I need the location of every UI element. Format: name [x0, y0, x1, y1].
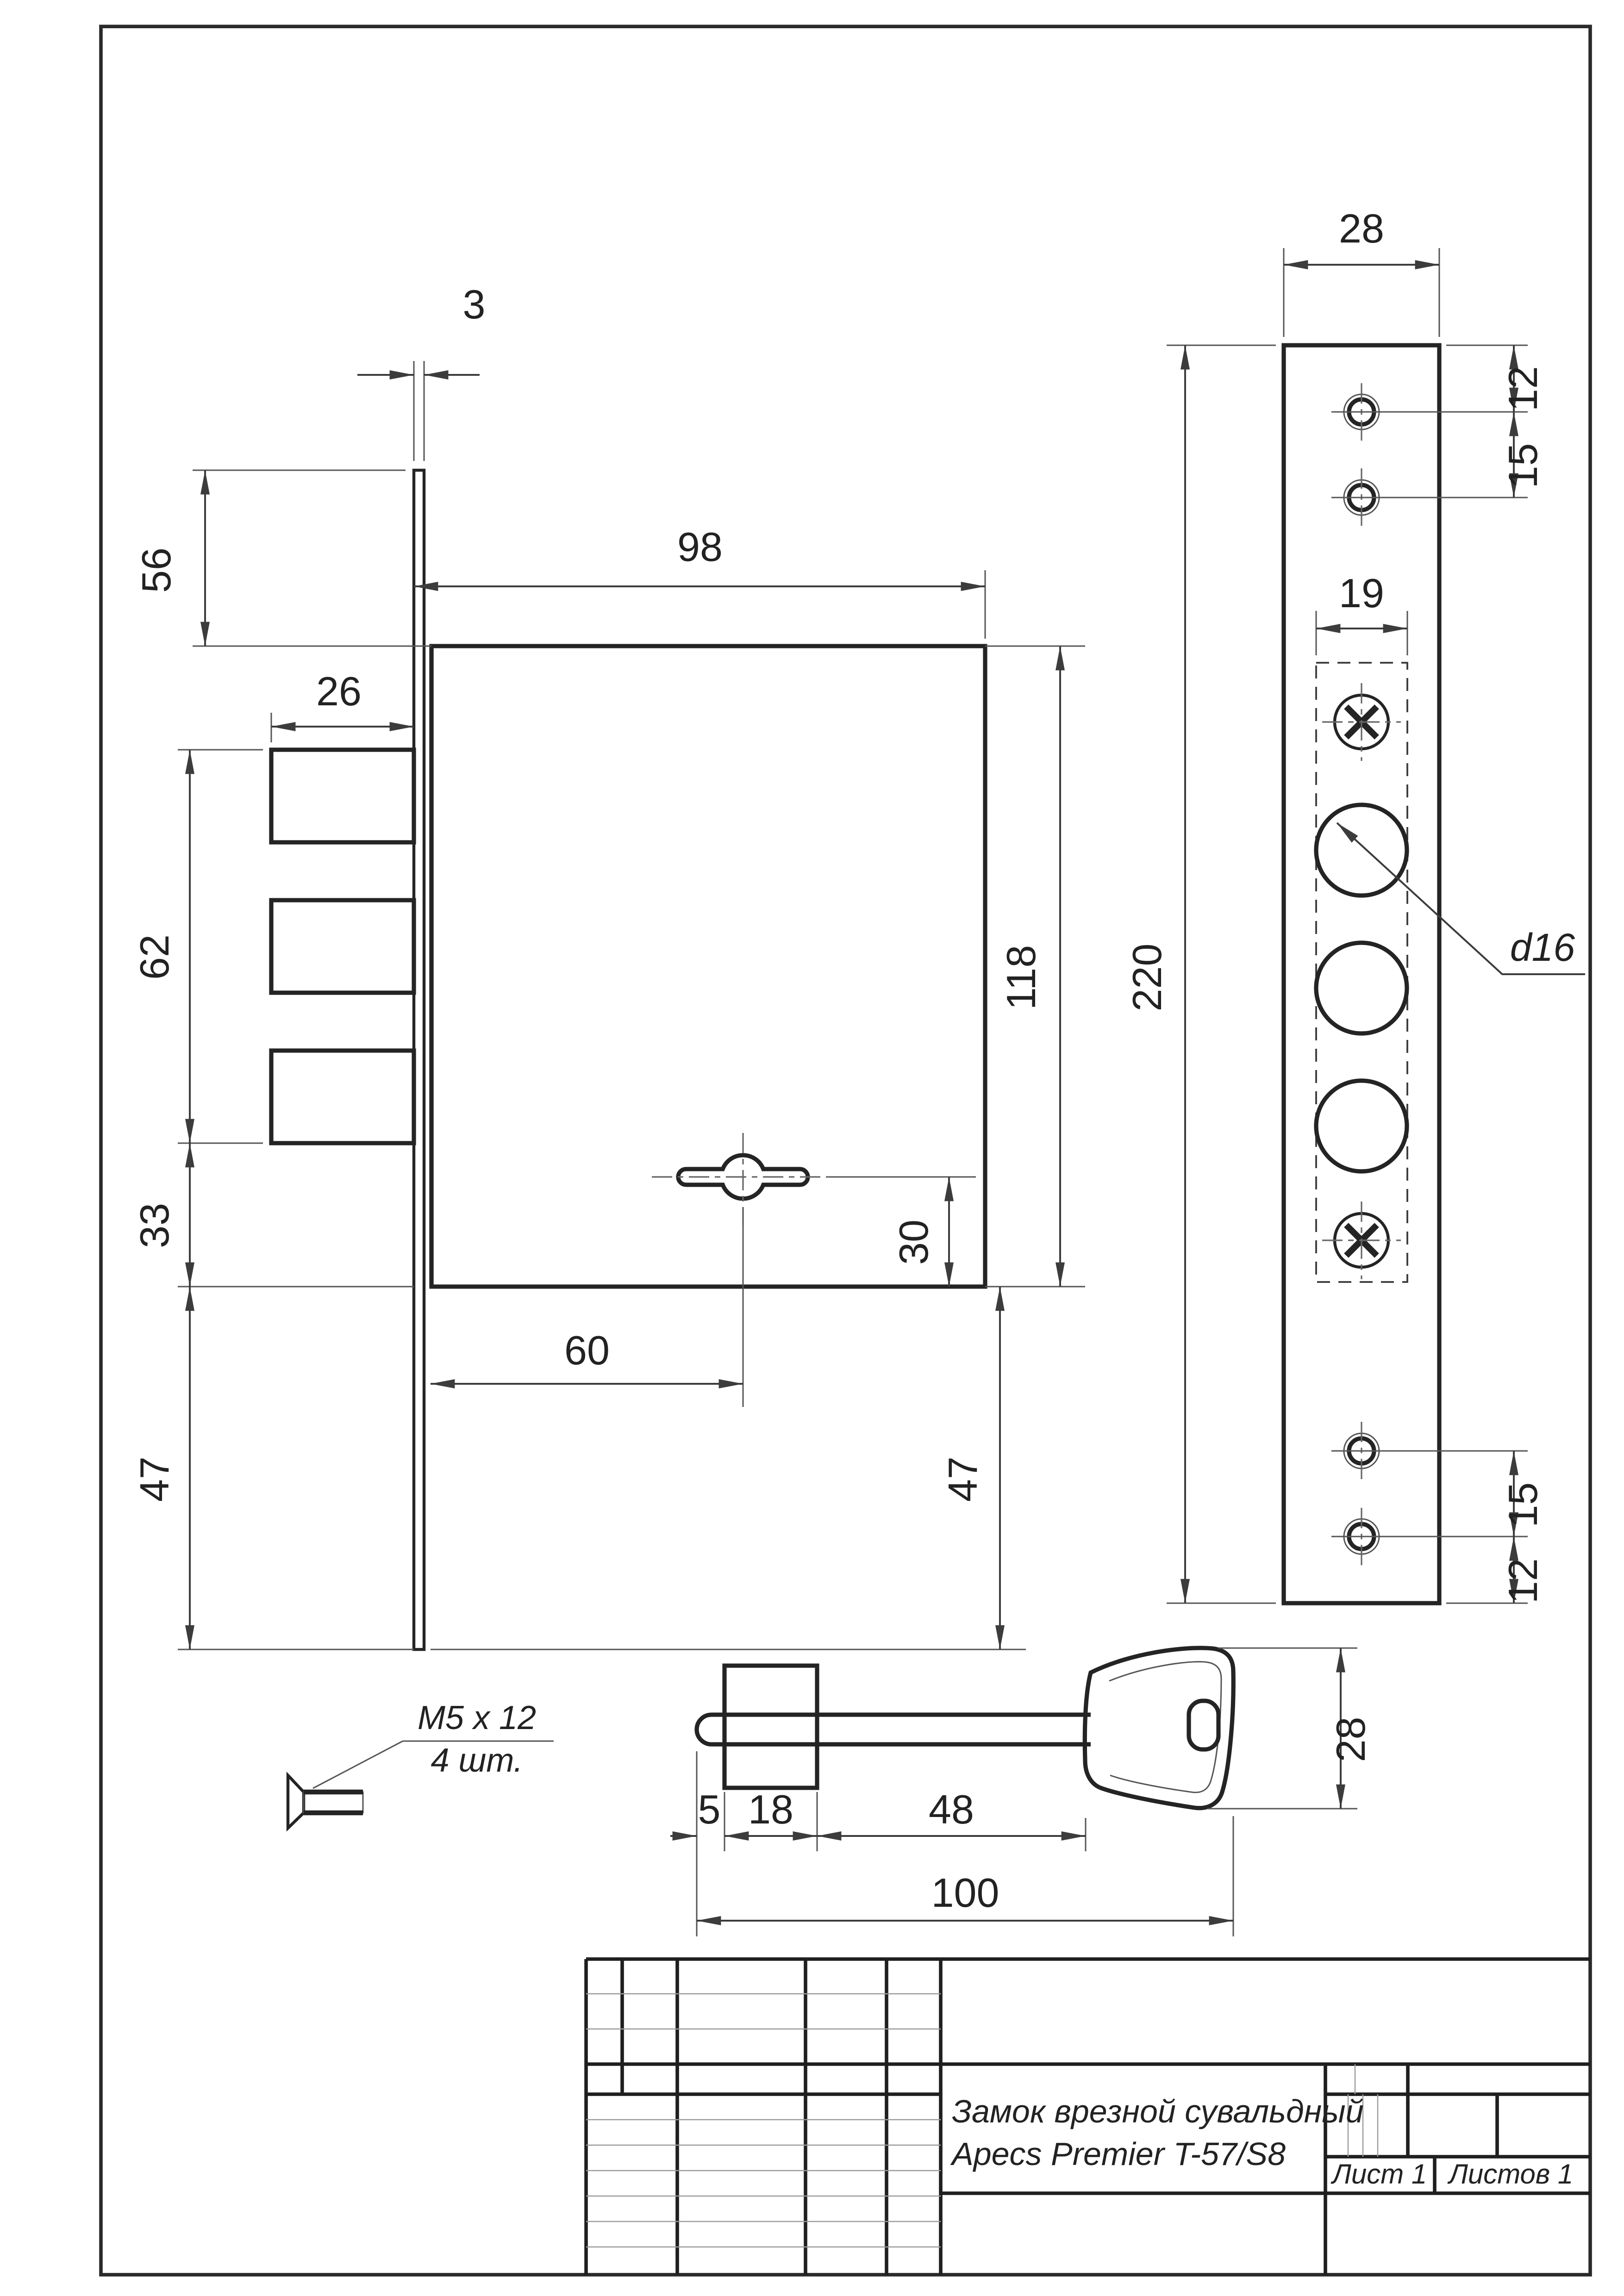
dim-cutout-width: 19: [1339, 570, 1384, 616]
screw-detail: M5 x 12 4 шт.: [288, 1699, 554, 1828]
cutout-outline: [1316, 663, 1407, 1282]
key-view: 5 18 48 100 28: [670, 1648, 1374, 1936]
dim-bottom-left: 47: [131, 1456, 177, 1502]
sheet-frame: [101, 26, 1590, 2275]
dim-body-width: 98: [677, 524, 723, 570]
dim-key-total: 100: [931, 1870, 999, 1916]
screw-cross-bottom: [1322, 1201, 1401, 1279]
dim-hole-diameter: d16: [1510, 926, 1575, 969]
dim-top-hole-offset: 12: [1500, 366, 1546, 411]
dim-key-head-height: 28: [1328, 1717, 1374, 1762]
lock-body: [431, 646, 985, 1287]
key-shaft: [697, 1715, 1091, 1744]
side-view: 3 56 98 26 62 33 47 60 118 3: [131, 281, 1085, 1649]
dim-top-hole-pitch: 15: [1500, 443, 1546, 488]
faceplate-front: [1284, 345, 1439, 1603]
drawing-canvas: 3 56 98 26 62 33 47 60 118 3: [0, 0, 1624, 2296]
dim-plate-height: 220: [1124, 944, 1170, 1012]
dim-bottom-hole-pitch: 15: [1500, 1482, 1546, 1528]
key-hole-3: [1316, 1081, 1407, 1171]
sheets-total-label: Листов 1: [1447, 2159, 1574, 2190]
dim-key-tip: 5: [698, 1786, 721, 1832]
dim-body-height: 118: [998, 945, 1044, 1010]
dim-plate-width: 28: [1339, 205, 1384, 251]
sheet-number-label: Лист 1: [1330, 2159, 1427, 2190]
dim-key-bit: 18: [748, 1786, 793, 1832]
title-line-2: Apecs Premier T-57/S8: [950, 2136, 1286, 2172]
screw-spec-label: M5 x 12: [418, 1699, 536, 1736]
dim-key-shaft: 48: [929, 1786, 974, 1832]
key-head: [1085, 1648, 1233, 1808]
key-bit: [725, 1666, 817, 1788]
title-block: Замок врезной сувальдный Apecs Premier T…: [586, 1959, 1590, 2275]
dim-plate-thickness: 3: [463, 281, 486, 327]
drawing-sheet: 3 56 98 26 62 33 47 60 118 3: [0, 0, 1624, 2296]
screw-qty-label: 4 шт.: [431, 1742, 523, 1779]
bolt-3: [271, 1051, 414, 1143]
bolt-2: [271, 900, 414, 993]
bolt-1: [271, 750, 414, 842]
dim-bottom-hole-offset: 12: [1500, 1558, 1546, 1604]
face-view: 220 28 12 15 19: [1124, 205, 1585, 1604]
screw-cross-top: [1322, 683, 1401, 761]
screw-head: [288, 1775, 304, 1828]
dim-bottom-right: 47: [940, 1456, 986, 1502]
key-hole-1: [1316, 805, 1407, 896]
dim-bolt-throw: 26: [316, 668, 362, 714]
screw-leader: [313, 1741, 403, 1788]
key-head-slot: [1189, 1701, 1218, 1749]
dim-bolt-span: 62: [131, 934, 177, 980]
dim-bolt-to-body-bottom: 33: [131, 1203, 177, 1248]
dim-keyhole-offset: 60: [564, 1327, 610, 1373]
screw-shaft: [304, 1792, 363, 1813]
dim-top-offset: 56: [133, 548, 179, 593]
title-line-1: Замок врезной сувальдный: [952, 2093, 1364, 2129]
dim-keyhole-to-bottom: 30: [891, 1220, 937, 1265]
key-head-inner-line: [1109, 1662, 1221, 1792]
key-hole-2: [1316, 943, 1407, 1033]
